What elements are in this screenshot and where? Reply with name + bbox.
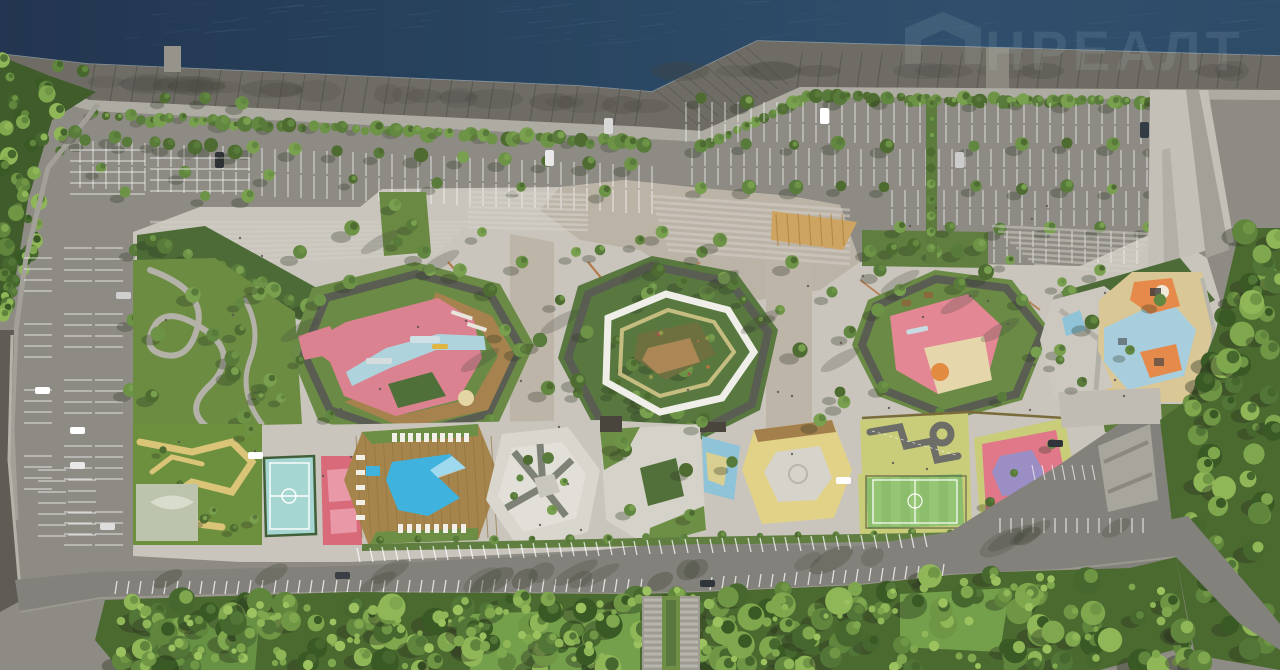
svg-text:НРЕАЛТ: НРЕАЛТ	[985, 19, 1245, 82]
